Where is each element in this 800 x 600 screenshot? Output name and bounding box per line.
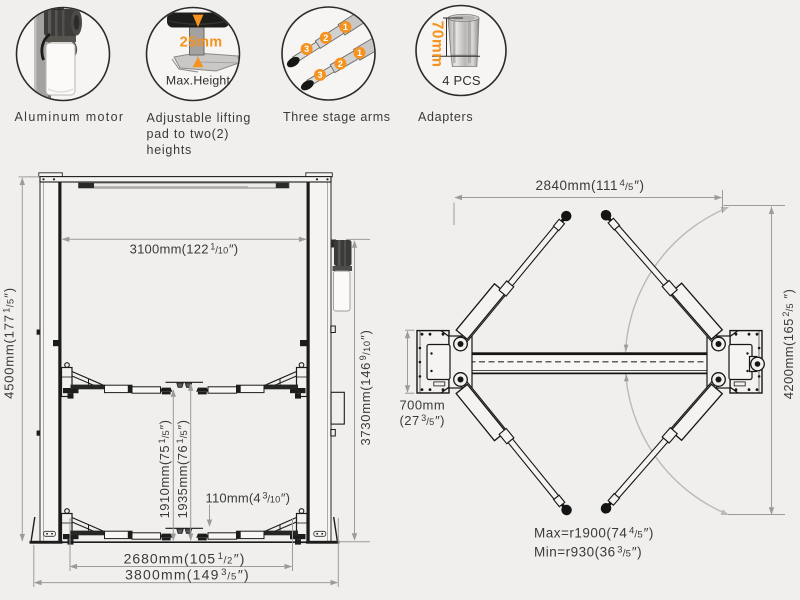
svg-text:heights: heights (147, 143, 193, 157)
svg-text:Three stage arms: Three stage arms (283, 110, 391, 124)
svg-text:25mm: 25mm (180, 35, 223, 51)
svg-text:3: 3 (304, 44, 309, 54)
svg-text:1: 1 (357, 48, 362, 58)
svg-text:Aluminum motor: Aluminum motor (15, 110, 125, 124)
svg-text:2: 2 (338, 59, 343, 69)
svg-text:700mm: 700mm (400, 398, 446, 413)
svg-text:pad to two(2): pad to two(2) (147, 127, 230, 141)
svg-text:Max.Height: Max.Height (166, 74, 231, 88)
svg-text:1: 1 (343, 22, 348, 32)
svg-text:70mm: 70mm (429, 21, 446, 68)
svg-text:Max=r1900(744/5″): Max=r1900(744/5″) (534, 525, 654, 540)
svg-text:2840mm(1114/5″): 2840mm(1114/5″) (535, 178, 644, 193)
svg-text:2: 2 (323, 33, 328, 43)
svg-text:Adjustable lifting: Adjustable lifting (147, 111, 252, 125)
svg-text:Min=r930(363/5″): Min=r930(363/5″) (534, 544, 642, 559)
svg-text:Adapters: Adapters (418, 110, 473, 124)
svg-text:3: 3 (317, 70, 322, 80)
svg-text:4 PCS: 4 PCS (442, 73, 481, 88)
